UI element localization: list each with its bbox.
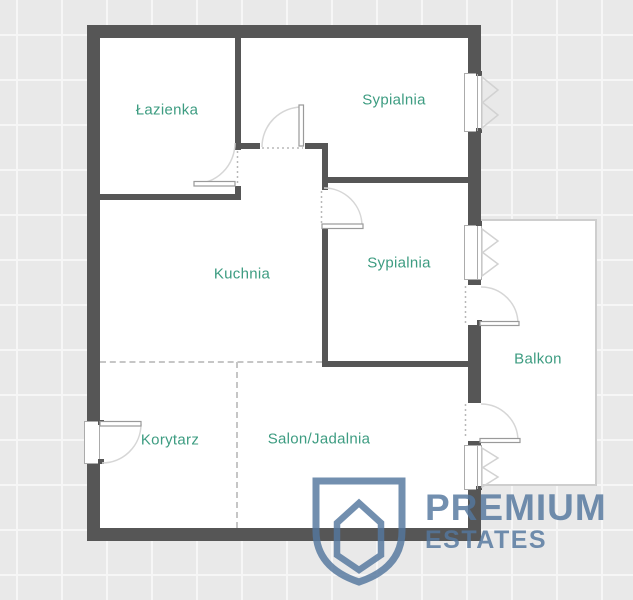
room-label-balkon: Balkon	[514, 351, 562, 368]
window-chevron-icon	[482, 77, 498, 487]
shield-house-logo-icon	[312, 477, 406, 587]
logo-text-estates: ESTATES	[425, 528, 607, 553]
logo-text-premium: PREMIUM	[425, 489, 607, 526]
room-label-kuchnia: Kuchnia	[214, 266, 270, 283]
door-opening-marker	[238, 148, 466, 439]
door-leaf	[100, 105, 520, 443]
room-label-sypialnia-1: Sypialnia	[362, 92, 426, 109]
watermark-logo: PREMIUM ESTATES	[293, 475, 633, 600]
room-label-korytarz: Korytarz	[141, 432, 199, 449]
room-label-salon-jadalnia: Salon/Jadalnia	[268, 431, 371, 448]
door-arc	[102, 107, 518, 463]
floor-plan: Łazienka Sypialnia Sypialnia Kuchnia Kor…	[0, 0, 633, 600]
room-label-sypialnia-2: Sypialnia	[367, 255, 431, 272]
room-label-lazienka: Łazienka	[136, 102, 198, 119]
